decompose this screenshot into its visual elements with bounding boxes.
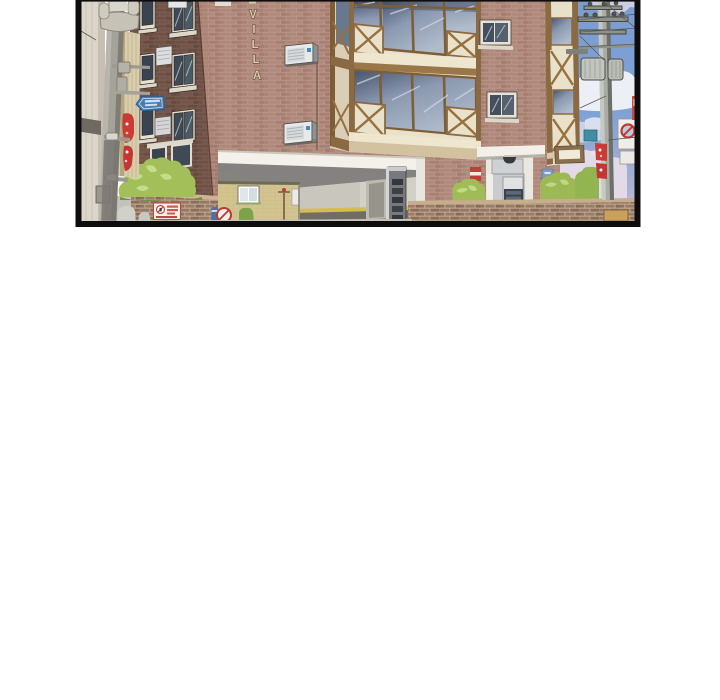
svg-text:I: I xyxy=(252,24,255,36)
svg-text:L: L xyxy=(252,54,259,66)
svg-text:V: V xyxy=(249,9,257,21)
svg-text:L: L xyxy=(251,39,258,51)
svg-text:A: A xyxy=(253,70,261,82)
